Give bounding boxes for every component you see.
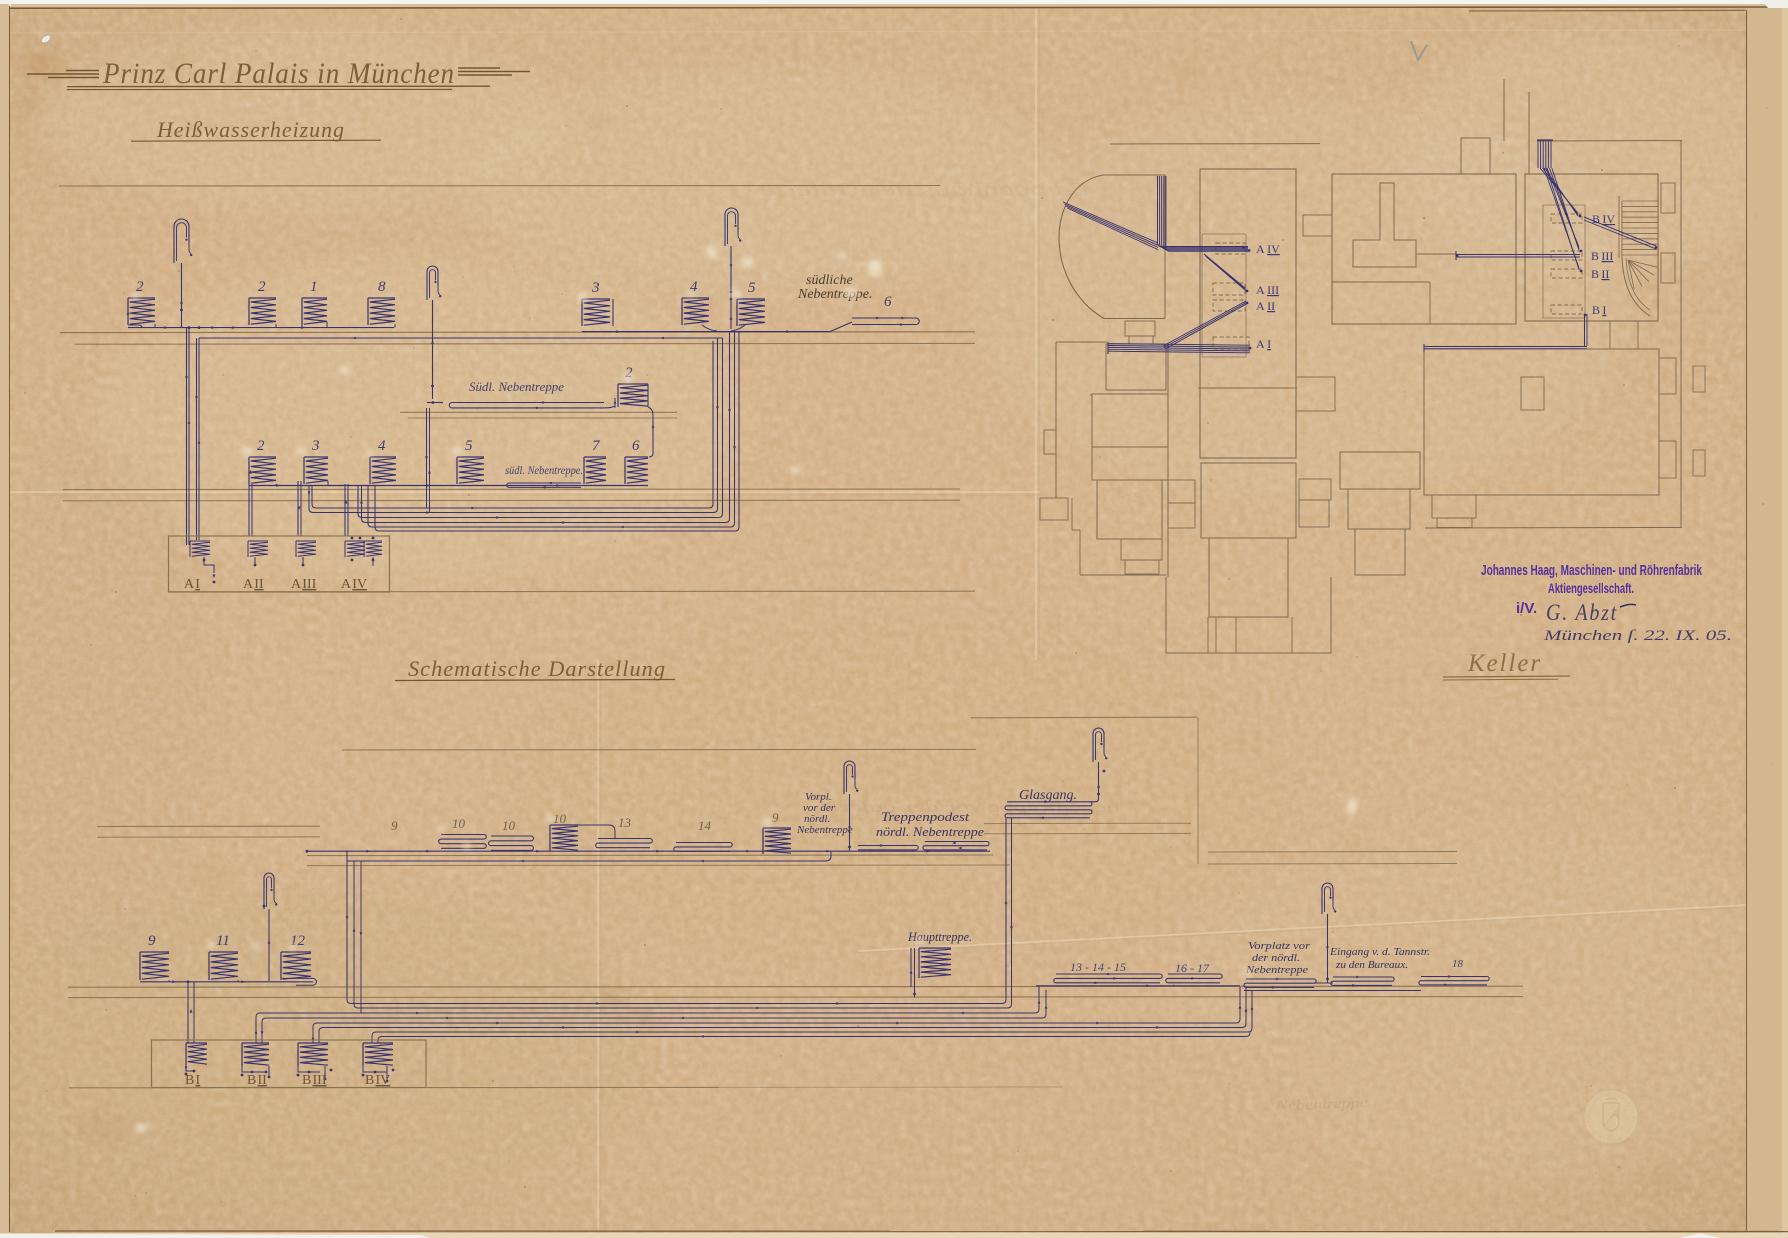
svg-text:Prinz Carl Palais in München: Prinz Carl Palais in München [102,57,455,90]
svg-text:München ſ. 22. IX. 05.: München ſ. 22. IX. 05. [1543,628,1732,644]
svg-text:9: 9 [772,810,779,825]
svg-text:Keller: Keller [1467,650,1542,677]
svg-text:3: 3 [591,280,600,296]
svg-text:Schematische Darstellung: Schematische Darstellung [408,656,666,681]
svg-text:6: 6 [632,438,640,454]
svg-text:11: 11 [216,933,230,949]
svg-text:Südl. Nebentreppe: Südl. Nebentreppe [469,379,564,394]
svg-text:Heißwasserheizung: Heißwasserheizung [156,117,345,142]
svg-text:3: 3 [311,438,320,454]
svg-text:B III: B III [302,1073,327,1088]
svg-text:B I: B I [185,1073,201,1088]
svg-text:A II: A II [243,577,264,592]
svg-text:13 - 14 - 15: 13 - 14 - 15 [1070,960,1126,974]
svg-text:8: 8 [378,279,386,295]
svg-text:A IV: A IV [1256,242,1280,256]
svg-text:A I: A I [184,577,200,592]
svg-text:Glasgang.: Glasgang. [1019,788,1077,803]
svg-text:A III: A III [291,577,317,592]
svg-text:A IV: A IV [341,577,367,592]
svg-text:Eingang v. d. Tannstr.: Eingang v. d. Tannstr. [1329,946,1430,958]
svg-text:B II: B II [1591,267,1609,281]
svg-text:Nebentreppe: Nebentreppe [796,824,853,836]
svg-text:2: 2 [136,279,144,295]
svg-text:14: 14 [698,818,712,833]
svg-text:9: 9 [391,818,398,833]
svg-text:Treppenhaus der Galerie: Treppenhaus der Galerie [760,179,1090,201]
svg-text:nördl. Nebentreppe: nördl. Nebentreppe [876,824,984,839]
svg-text:10: 10 [502,818,516,833]
svg-text:5: 5 [748,280,756,296]
svg-text:6: 6 [884,294,892,310]
svg-text:B IV: B IV [365,1073,390,1088]
svg-text:zu den Bureaux.: zu den Bureaux. [1335,959,1408,971]
svg-text:4: 4 [378,438,386,454]
svg-text:i/V.: i/V. [1516,600,1537,617]
svg-text:Treppenpodest: Treppenpodest [881,809,969,824]
svg-text:Aktiengesellschaft.: Aktiengesellschaft. [1548,580,1634,596]
svg-text:9: 9 [148,933,156,949]
svg-text:A II: A II [1256,299,1275,313]
svg-text:der nördl.: der nördl. [1252,952,1300,964]
svg-text:südliche: südliche [806,273,853,288]
svg-text:G. Abzt: G. Abzt [1546,600,1618,625]
svg-text:2: 2 [257,438,265,454]
svg-text:B IV: B IV [1592,212,1615,226]
svg-text:18: 18 [1452,958,1464,970]
svg-text:südl. Nebentreppe.: südl. Nebentreppe. [505,463,583,477]
svg-text:B II: B II [247,1073,267,1088]
svg-text:10: 10 [553,811,567,826]
svg-text:2: 2 [258,279,266,295]
svg-text:Nebentreppe.: Nebentreppe. [797,287,873,302]
svg-text:16 - 17: 16 - 17 [1175,961,1210,975]
svg-text:B I: B I [1592,303,1606,317]
svg-text:5: 5 [465,438,473,454]
svg-text:1: 1 [310,279,318,295]
svg-text:B III: B III [1591,249,1613,263]
svg-text:A III: A III [1256,283,1279,297]
svg-text:Nebentreppe: Nebentreppe [1245,964,1308,976]
svg-text:A I: A I [1256,337,1271,351]
svg-text:10: 10 [452,816,466,831]
svg-text:13: 13 [618,815,632,830]
svg-text:Vorplatz vor: Vorplatz vor [1248,940,1311,952]
svg-text:Johannes Haag, Maschinen- und: Johannes Haag, Maschinen- und Röhrenfabr… [1481,562,1702,579]
